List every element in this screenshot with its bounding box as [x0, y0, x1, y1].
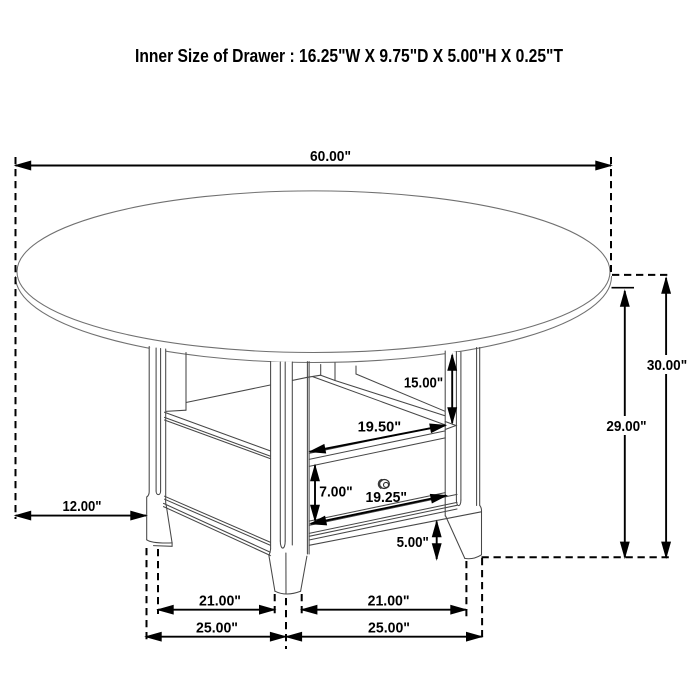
svg-text:21.00": 21.00": [199, 594, 241, 610]
svg-text:25.00": 25.00": [196, 621, 238, 637]
svg-text:5.00": 5.00": [397, 535, 429, 551]
svg-text:29.00": 29.00": [606, 419, 646, 435]
svg-text:30.00": 30.00": [647, 358, 687, 374]
svg-text:12.00": 12.00": [63, 499, 102, 515]
svg-text:Inner Size of Drawer : 16.25"W: Inner Size of Drawer : 16.25"W X 9.75"D …: [135, 46, 563, 66]
svg-text:60.00": 60.00": [310, 149, 351, 165]
svg-text:19.50": 19.50": [358, 420, 402, 436]
svg-text:7.00": 7.00": [319, 485, 352, 501]
svg-text:21.00": 21.00": [368, 594, 410, 610]
svg-text:19.25": 19.25": [366, 490, 408, 506]
svg-text:15.00": 15.00": [404, 375, 443, 391]
svg-text:25.00": 25.00": [368, 621, 410, 637]
